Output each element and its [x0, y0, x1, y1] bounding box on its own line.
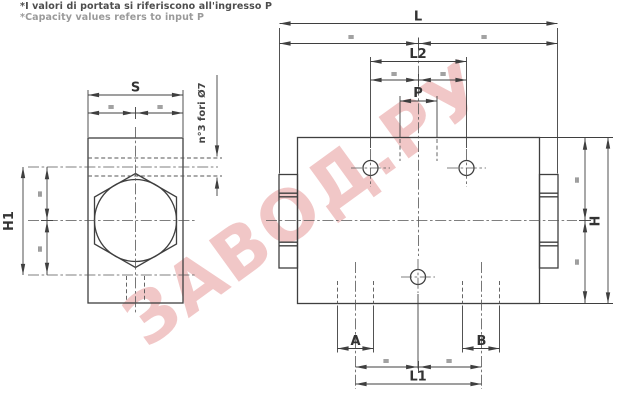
right-plug [540, 175, 559, 269]
dim-l1-label: L1 [409, 370, 426, 385]
dim-holes: n°3 fori Ø7 [196, 75, 217, 196]
dim-s-label: S [131, 81, 140, 96]
equal-mark: = [439, 70, 446, 80]
equal-mark: = [445, 357, 452, 367]
equal-mark: = [36, 190, 46, 197]
plan-view: L = = L2 = = [266, 10, 613, 390]
dim-h-label: H [589, 216, 604, 227]
equal-mark: = [480, 33, 487, 43]
dim-h1-label: H1 [2, 211, 17, 231]
dim-p-label: P [413, 86, 423, 101]
equal-mark: = [36, 245, 46, 252]
left-plug [279, 175, 298, 269]
dim-a: A [338, 262, 374, 389]
dim-b-label: B [477, 334, 487, 349]
equal-mark: = [382, 357, 389, 367]
dim-a-label: A [350, 334, 360, 349]
side-view: S = = n°3 fori Ø7 H1 [2, 75, 222, 314]
equal-mark: = [156, 103, 163, 113]
dim-h1: H1 = = [2, 167, 53, 275]
equal-mark: = [573, 176, 583, 183]
holes-note-label: n°3 fori Ø7 [196, 82, 208, 143]
equal-mark: = [390, 70, 397, 80]
dim-b: B [463, 262, 500, 389]
dim-l-label: L [414, 10, 422, 25]
dim-l2-label: L2 [409, 47, 426, 62]
technical-drawing: S = = n°3 fori Ø7 H1 [0, 0, 626, 400]
equal-mark: = [107, 103, 114, 113]
equal-mark: = [347, 33, 354, 43]
drawing-page: ЗАВОД.РУ *I valori di portata si riferis… [0, 0, 626, 400]
equal-mark: = [573, 258, 583, 265]
dim-l1: = = L1 [356, 357, 482, 385]
